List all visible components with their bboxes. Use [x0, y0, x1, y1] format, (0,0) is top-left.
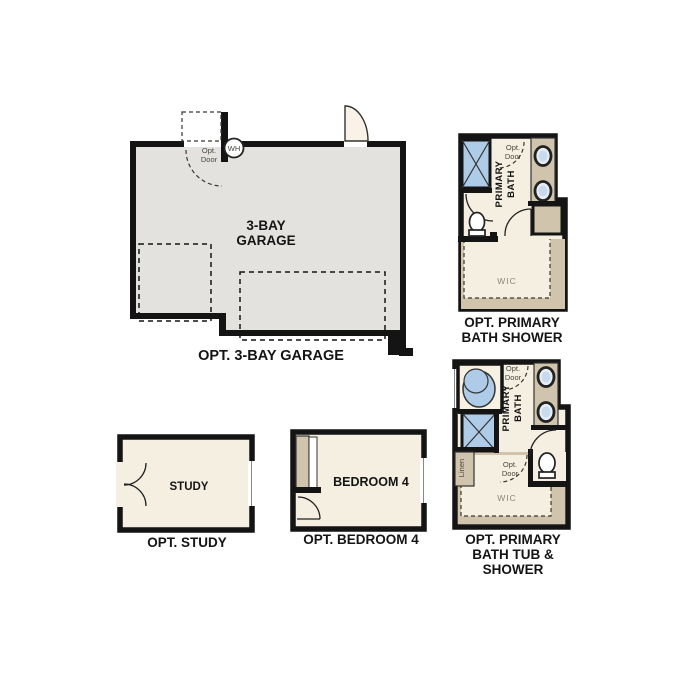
- water-heater-label: WH: [228, 144, 241, 153]
- closet-icon: [293, 436, 321, 493]
- bedroom4-room-label: BEDROOM 4: [333, 475, 409, 489]
- bath-room-label: PRIMARY: [494, 160, 505, 207]
- floorplan-options-sheet: Opt. Door WH 3-BAY GARAGE OPT. 3-BAY GAR…: [0, 0, 687, 687]
- opt-door-label: Door: [502, 469, 519, 478]
- window-icon: [420, 458, 428, 503]
- garage-room-label: 3-BAY: [246, 218, 285, 233]
- toilet-icon: [469, 213, 485, 237]
- opt-door-label: Opt.: [506, 143, 520, 152]
- bath-shower-caption: OPT. PRIMARY: [464, 315, 560, 330]
- bath-shower-caption: BATH SHOWER: [462, 330, 563, 345]
- bath-cabinet: [533, 205, 562, 234]
- garage-plan: Opt. Door WH 3-BAY GARAGE OPT. 3-BAY GAR…: [130, 106, 413, 364]
- wic-floor: [464, 239, 550, 298]
- garage-room-label: GARAGE: [236, 233, 295, 248]
- opt-door-label: Door: [201, 155, 218, 164]
- opt-door-label: Door: [505, 152, 522, 161]
- bedroom4-caption: OPT. BEDROOM 4: [303, 532, 419, 547]
- sink-icon: [538, 403, 554, 422]
- opt-door-label: Opt.: [506, 364, 520, 373]
- opt-door-label: Opt.: [503, 460, 517, 469]
- shower-icon: [462, 140, 490, 188]
- bath-room-label: BATH: [513, 394, 524, 422]
- linen-label: Linen: [457, 459, 466, 477]
- study-plan: STUDY OPT. STUDY: [116, 437, 256, 550]
- primary-bath-shower-plan: Opt. Door PRIMARY BATH WIC OPT. PRIMARY …: [458, 136, 565, 345]
- sink-icon: [535, 182, 551, 201]
- bath-room-label: BATH: [506, 170, 517, 198]
- wic-label: WIC: [497, 276, 517, 286]
- wic-label: WIC: [497, 493, 517, 503]
- shower-icon: [462, 413, 496, 451]
- primary-bath-tub-shower-plan: Opt. Door PRIMARY BATH Linen Opt. Door W…: [451, 362, 568, 577]
- bath-tub-caption: SHOWER: [483, 562, 544, 577]
- floorplan-canvas: Opt. Door WH 3-BAY GARAGE OPT. 3-BAY GAR…: [0, 0, 687, 687]
- bath-tub-caption: OPT. PRIMARY: [465, 532, 561, 547]
- opt-door-label: Opt.: [202, 146, 216, 155]
- study-caption: OPT. STUDY: [147, 535, 227, 550]
- sink-icon: [535, 147, 551, 166]
- sink-icon: [538, 368, 554, 387]
- opt-door-label: Door: [505, 373, 522, 382]
- toilet-icon: [539, 453, 555, 478]
- door-swing-icon: [345, 106, 368, 141]
- garage-caption: OPT. 3-BAY GARAGE: [198, 348, 344, 364]
- bath-room-label: PRIMARY: [501, 384, 512, 431]
- bath-tub-caption: BATH TUB &: [472, 547, 554, 562]
- tub-icon: [458, 364, 502, 411]
- bedroom4-plan: BEDROOM 4 OPT. BEDROOM 4: [293, 432, 428, 547]
- window-icon: [248, 461, 256, 506]
- study-room-label: STUDY: [170, 481, 209, 493]
